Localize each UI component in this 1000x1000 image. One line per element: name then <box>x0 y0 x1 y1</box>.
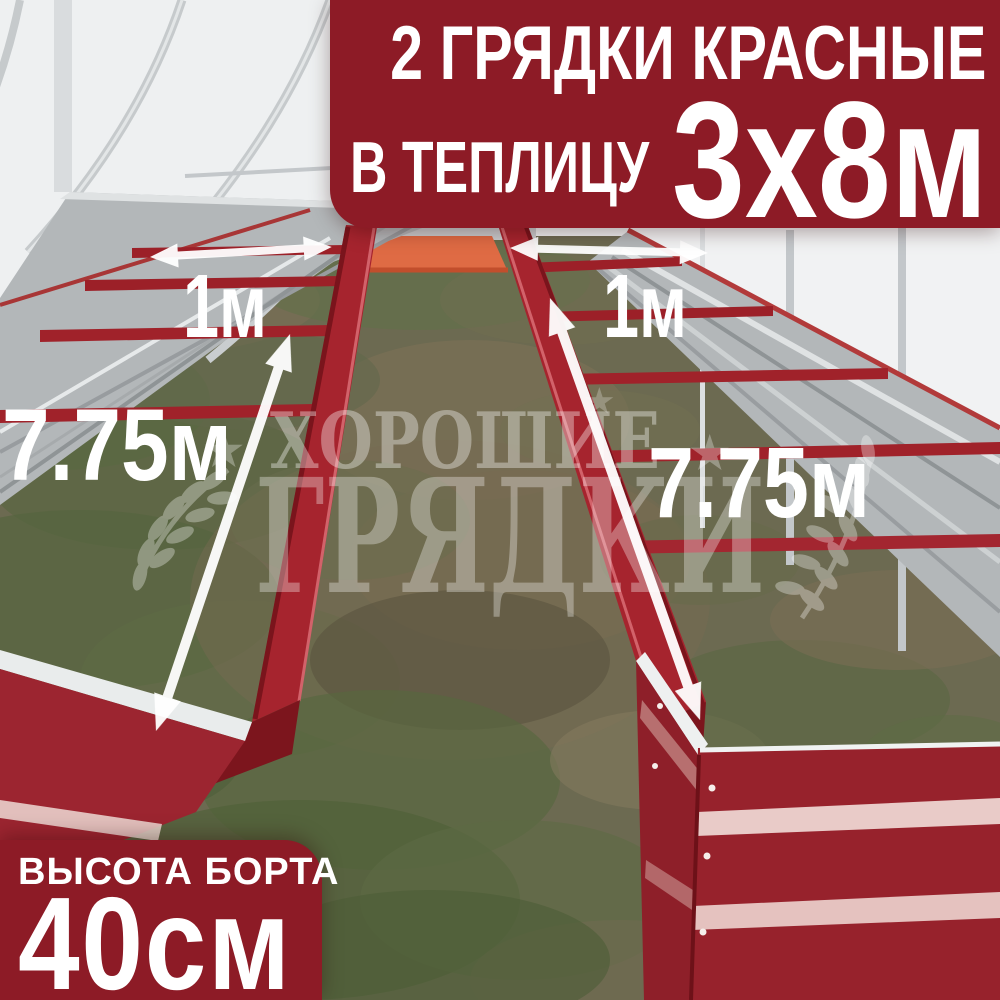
board-height-banner: ВЫСОТА БОРТА 40см <box>0 840 322 1000</box>
bed-length-label-left: 7.75м <box>2 388 232 502</box>
board-height-value: 40см <box>18 878 292 1000</box>
greenhouse-size-value: 3х8м <box>672 78 988 244</box>
bed-width-label-right: 1м <box>603 257 687 357</box>
bed-width-label-left: 1м <box>183 257 267 357</box>
product-title-banner: 2 ГРЯДКИ КРАСНЫЕ В ТЕПЛИЦУ 3х8м <box>330 0 1000 228</box>
product-subtitle: В ТЕПЛИЦУ <box>350 132 649 204</box>
bed-length-label-right: 7.75м <box>648 427 870 539</box>
product-image: ★ ★ ★ ХОРОШИЕ ГРЯДКИ 1м 1м 7.75м 7.75м 2… <box>0 0 1000 1000</box>
